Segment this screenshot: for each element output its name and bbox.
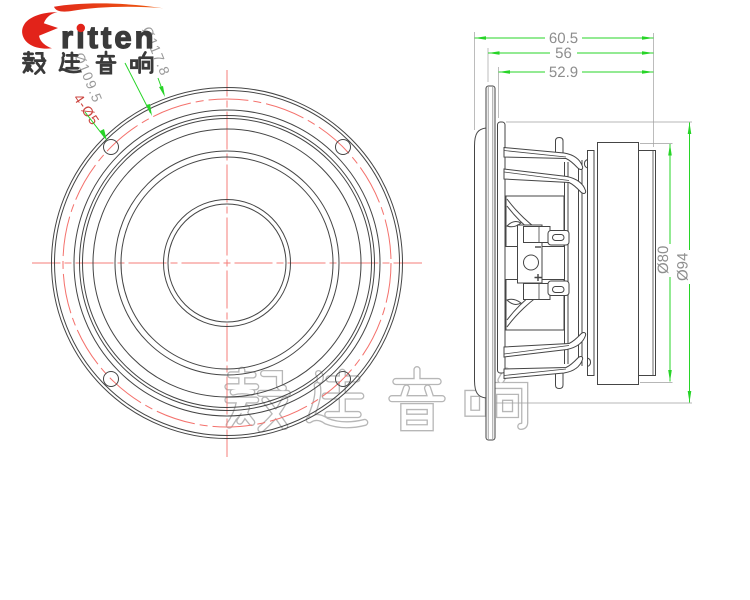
svg-text:Ø80: Ø80 bbox=[655, 246, 672, 274]
svg-text:52.9: 52.9 bbox=[549, 64, 578, 81]
svg-text:56: 56 bbox=[555, 45, 572, 62]
svg-text:rıtten: rıtten bbox=[61, 20, 157, 55]
svg-text:Ø94: Ø94 bbox=[675, 253, 692, 281]
